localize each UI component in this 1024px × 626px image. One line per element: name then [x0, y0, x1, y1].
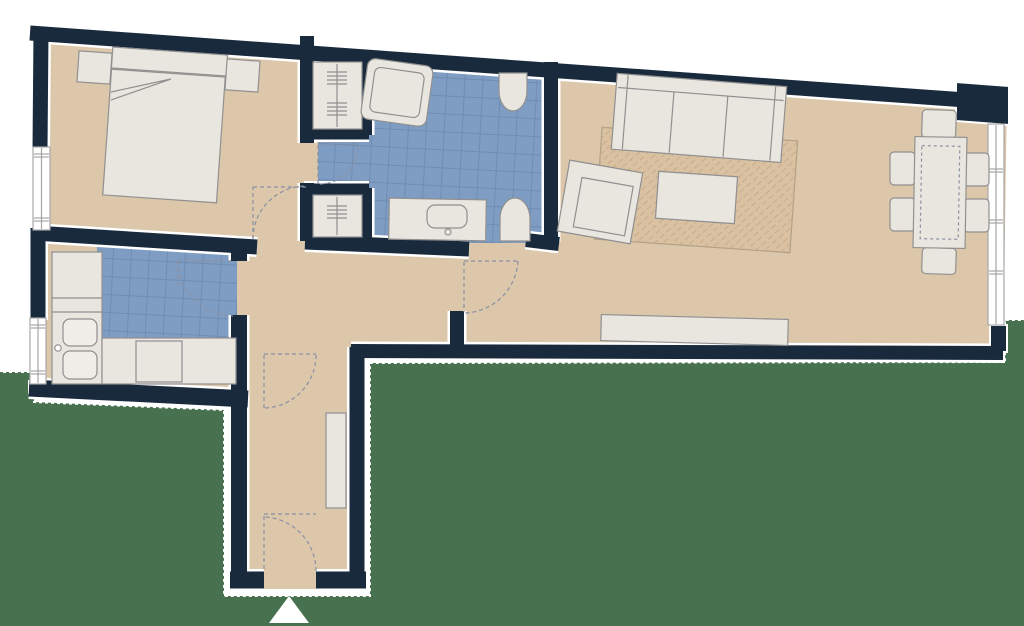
hallway-console — [326, 413, 346, 508]
kitchen-sink-basin-upper — [63, 319, 97, 346]
apartment-floor-plan — [0, 0, 1024, 626]
sideboard — [601, 315, 789, 346]
armchair-seat — [573, 177, 633, 235]
dining-chair-left-2 — [890, 198, 915, 231]
dining-chair-bottom — [922, 247, 957, 274]
wall-kitchen-bottom — [29, 388, 248, 399]
dining-chair-left-1 — [890, 152, 915, 185]
wall-bottom-main — [351, 351, 1003, 353]
coffee-table — [655, 171, 737, 223]
dining-chair-top — [922, 109, 957, 138]
kitchen-faucet — [55, 345, 61, 351]
dining-chair-right-1 — [964, 153, 989, 186]
wall-bathroom-bottom-left — [305, 242, 469, 249]
nightstand-right — [225, 59, 260, 92]
toilet-upper — [499, 73, 527, 111]
kitchen-sink-basin-lower — [63, 351, 97, 379]
kitchen-cooktop — [136, 341, 182, 382]
toilet-lower — [500, 198, 530, 241]
sofa — [611, 73, 786, 162]
floor-plan-canvas — [0, 0, 1024, 626]
shower-tray-inner — [369, 67, 425, 119]
dining-chair-right-2 — [964, 199, 989, 232]
nightstand-left — [77, 51, 112, 84]
wall-left-upper — [40, 31, 41, 149]
